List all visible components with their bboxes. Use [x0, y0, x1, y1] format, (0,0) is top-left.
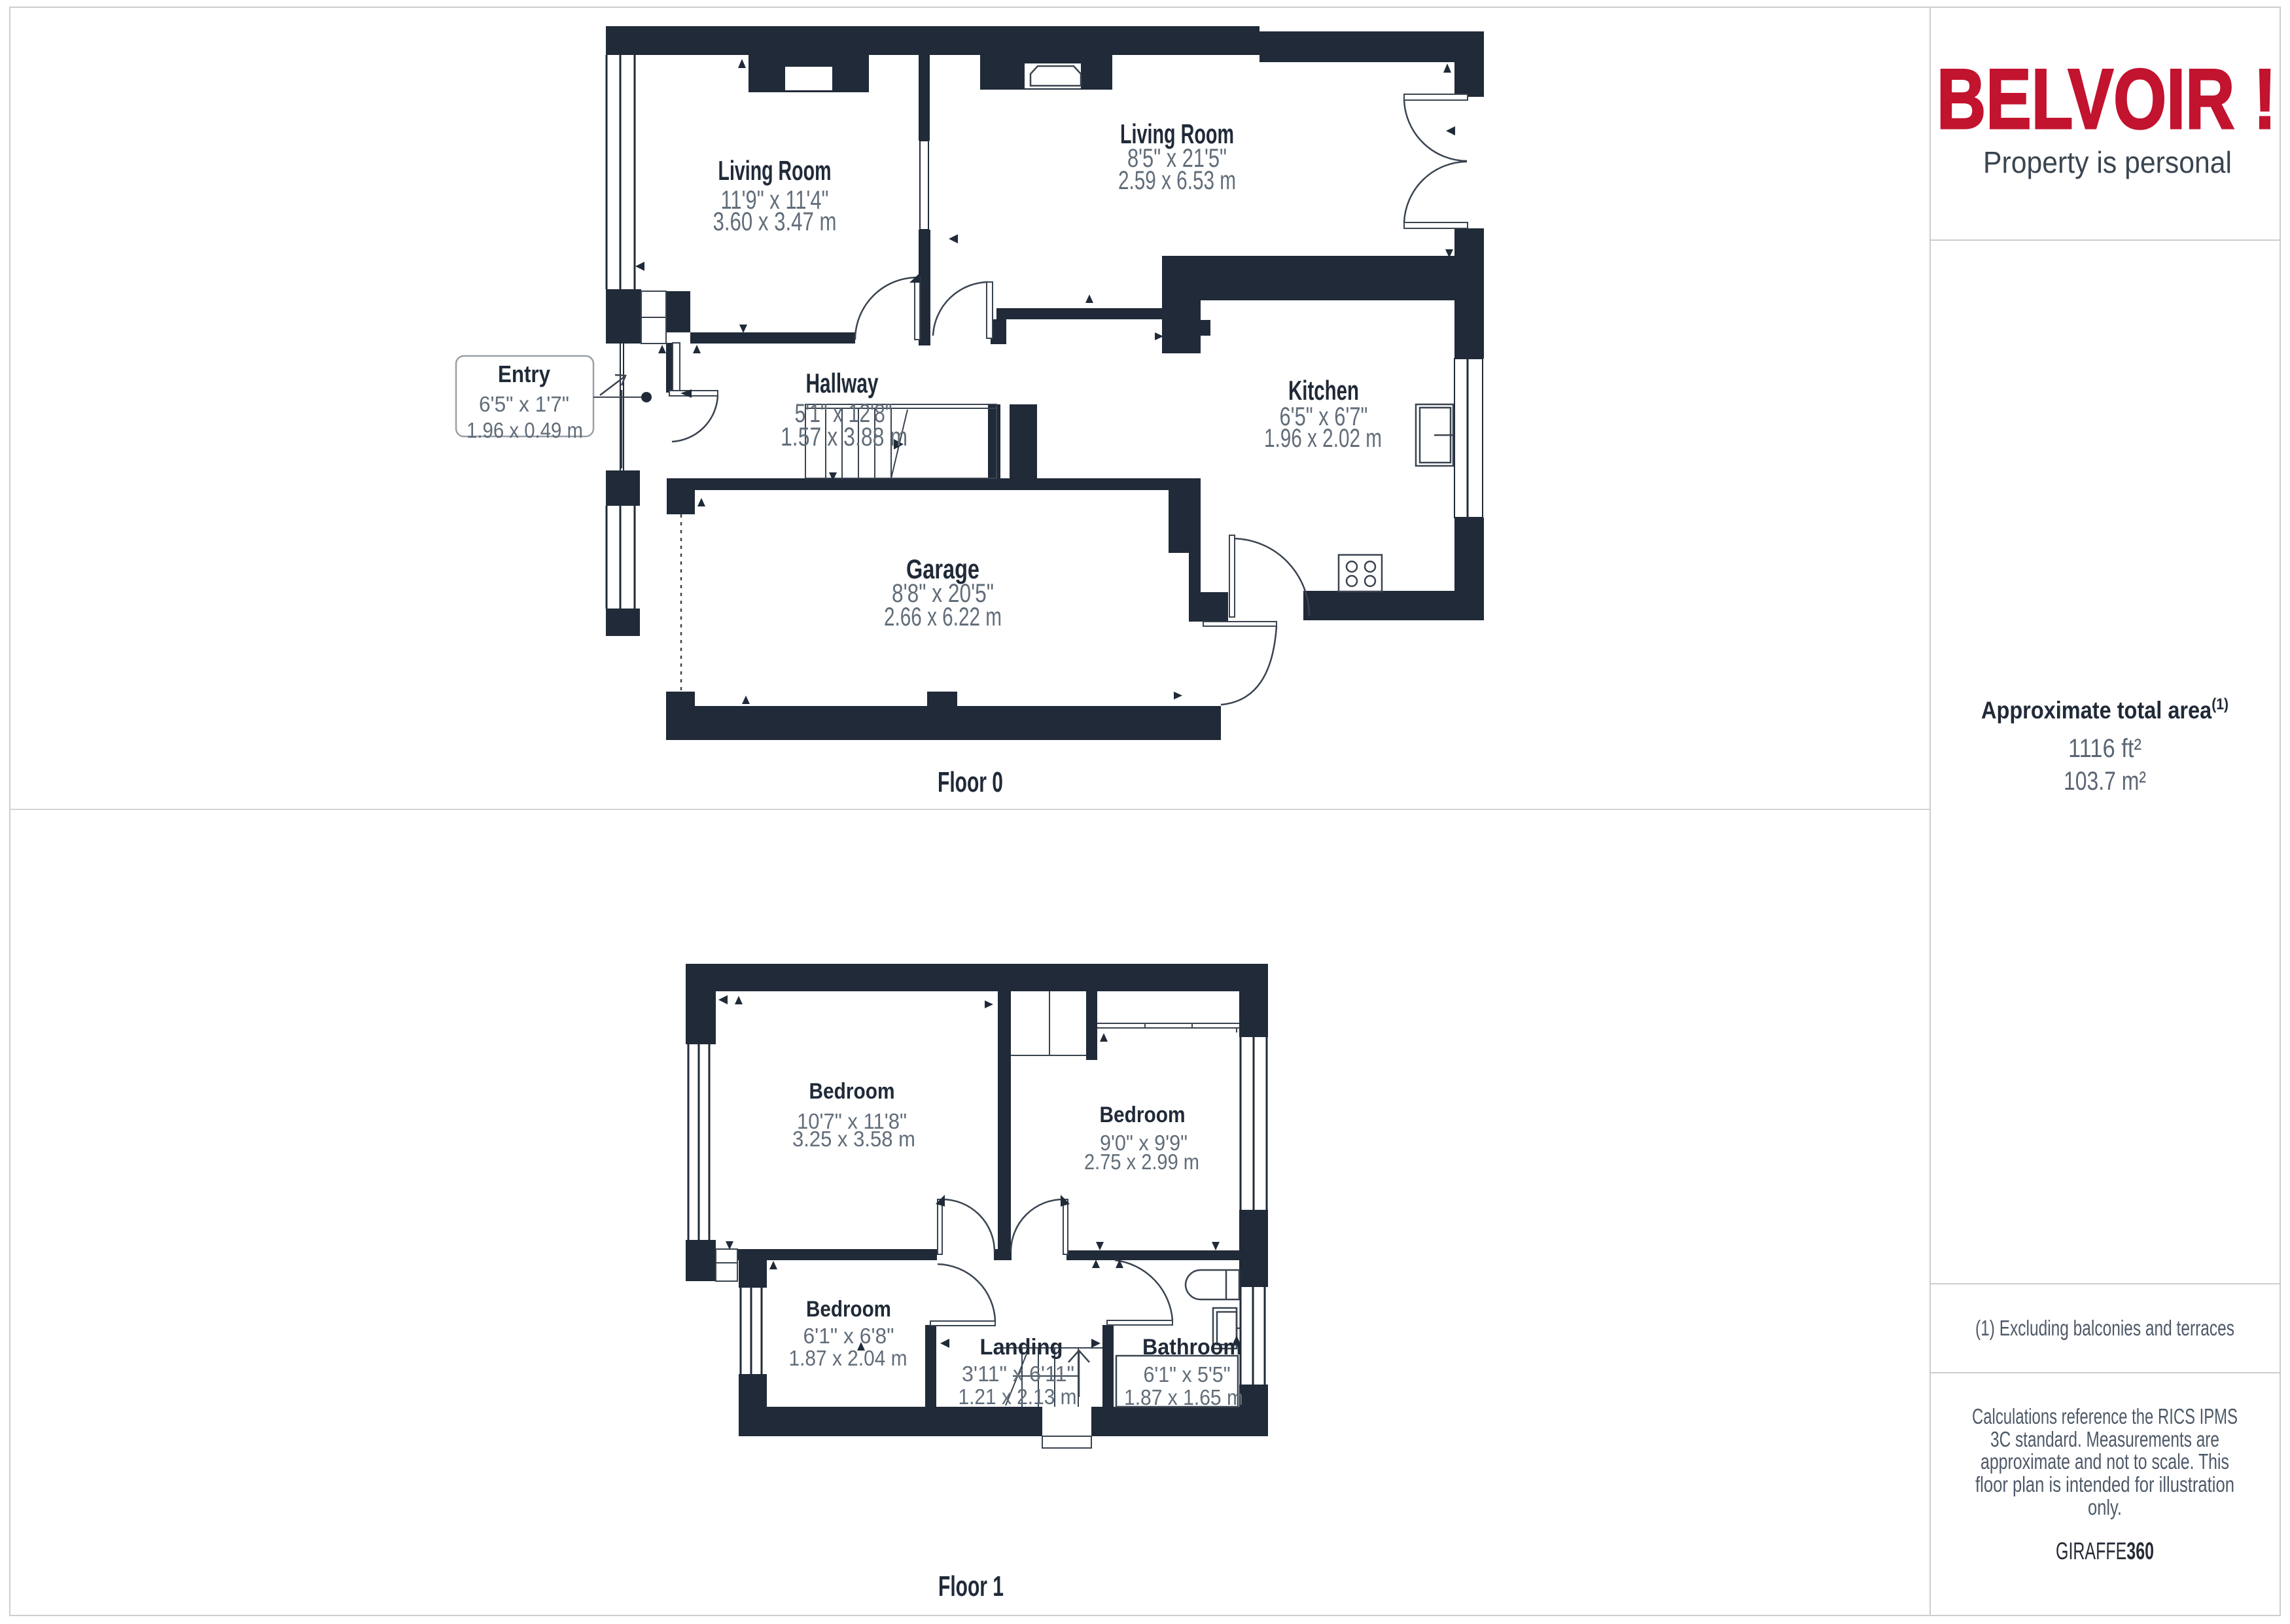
svg-text:2.75 x 2.99 m: 2.75 x 2.99 m — [1084, 1150, 1199, 1174]
svg-text:Kitchen: Kitchen — [1288, 375, 1359, 406]
svg-text:1.57 x 3.88 m: 1.57 x 3.88 m — [781, 423, 907, 451]
svg-text:Calculations reference the RIC: Calculations reference the RICS IPMS — [1972, 1404, 2238, 1428]
svg-text:3.25 x 3.58 m: 3.25 x 3.58 m — [792, 1127, 915, 1151]
svg-text:floor plan is intended for ill: floor plan is intended for illustration — [1975, 1472, 2234, 1496]
svg-text:Bathroom: Bathroom — [1142, 1335, 1242, 1360]
svg-text:1.21 x 2.13 m: 1.21 x 2.13 m — [959, 1385, 1077, 1409]
svg-text:1.87 x 2.04 m: 1.87 x 2.04 m — [789, 1346, 907, 1370]
svg-text:2.66 x 6.22 m: 2.66 x 6.22 m — [884, 603, 1002, 631]
svg-text:6'5" x 1'7": 6'5" x 1'7" — [479, 392, 569, 416]
svg-text:BELVOIR !: BELVOIR ! — [1937, 51, 2276, 147]
svg-text:3'11" x 6'11": 3'11" x 6'11" — [962, 1362, 1074, 1386]
svg-text:Entry: Entry — [498, 361, 550, 387]
svg-text:3C standard. Measurements are: 3C standard. Measurements are — [1990, 1427, 2219, 1451]
svg-text:3.60 x 3.47 m: 3.60 x 3.47 m — [713, 207, 837, 236]
svg-text:GIRAFFE360: GIRAFFE360 — [2056, 1538, 2154, 1564]
svg-text:only.: only. — [2088, 1495, 2122, 1519]
svg-text:Bedroom: Bedroom — [806, 1297, 891, 1322]
svg-text:Living Room: Living Room — [718, 155, 832, 186]
svg-text:Landing: Landing — [980, 1335, 1063, 1360]
svg-text:Bedroom: Bedroom — [1100, 1103, 1186, 1127]
svg-text:Bedroom: Bedroom — [809, 1079, 895, 1104]
svg-text:approximate and not to scale.: approximate and not to scale. This — [1981, 1449, 2229, 1474]
svg-text:1116 ft²: 1116 ft² — [2068, 734, 2141, 763]
svg-text:Hallway: Hallway — [806, 368, 879, 398]
svg-text:6'1" x 6'8": 6'1" x 6'8" — [803, 1324, 894, 1348]
svg-text:2.59 x 6.53 m: 2.59 x 6.53 m — [1118, 166, 1236, 195]
svg-text:1.87 x 1.65 m: 1.87 x 1.65 m — [1124, 1385, 1243, 1409]
svg-text:6'1" x 5'5": 6'1" x 5'5" — [1144, 1362, 1231, 1386]
svg-text:Property is personal: Property is personal — [1983, 145, 2232, 179]
svg-text:Floor 1: Floor 1 — [938, 1570, 1004, 1602]
svg-text:(1) Excluding balconies and te: (1) Excluding balconies and terraces — [1975, 1316, 2234, 1340]
svg-text:1.96 x 2.02 m: 1.96 x 2.02 m — [1264, 424, 1382, 453]
svg-text:1.96 x 0.49 m: 1.96 x 0.49 m — [467, 418, 583, 442]
svg-text:Approximate total area(1): Approximate total area(1) — [1981, 696, 2228, 724]
svg-text:103.7 m²: 103.7 m² — [2064, 767, 2146, 796]
svg-text:Floor 0: Floor 0 — [938, 766, 1003, 798]
